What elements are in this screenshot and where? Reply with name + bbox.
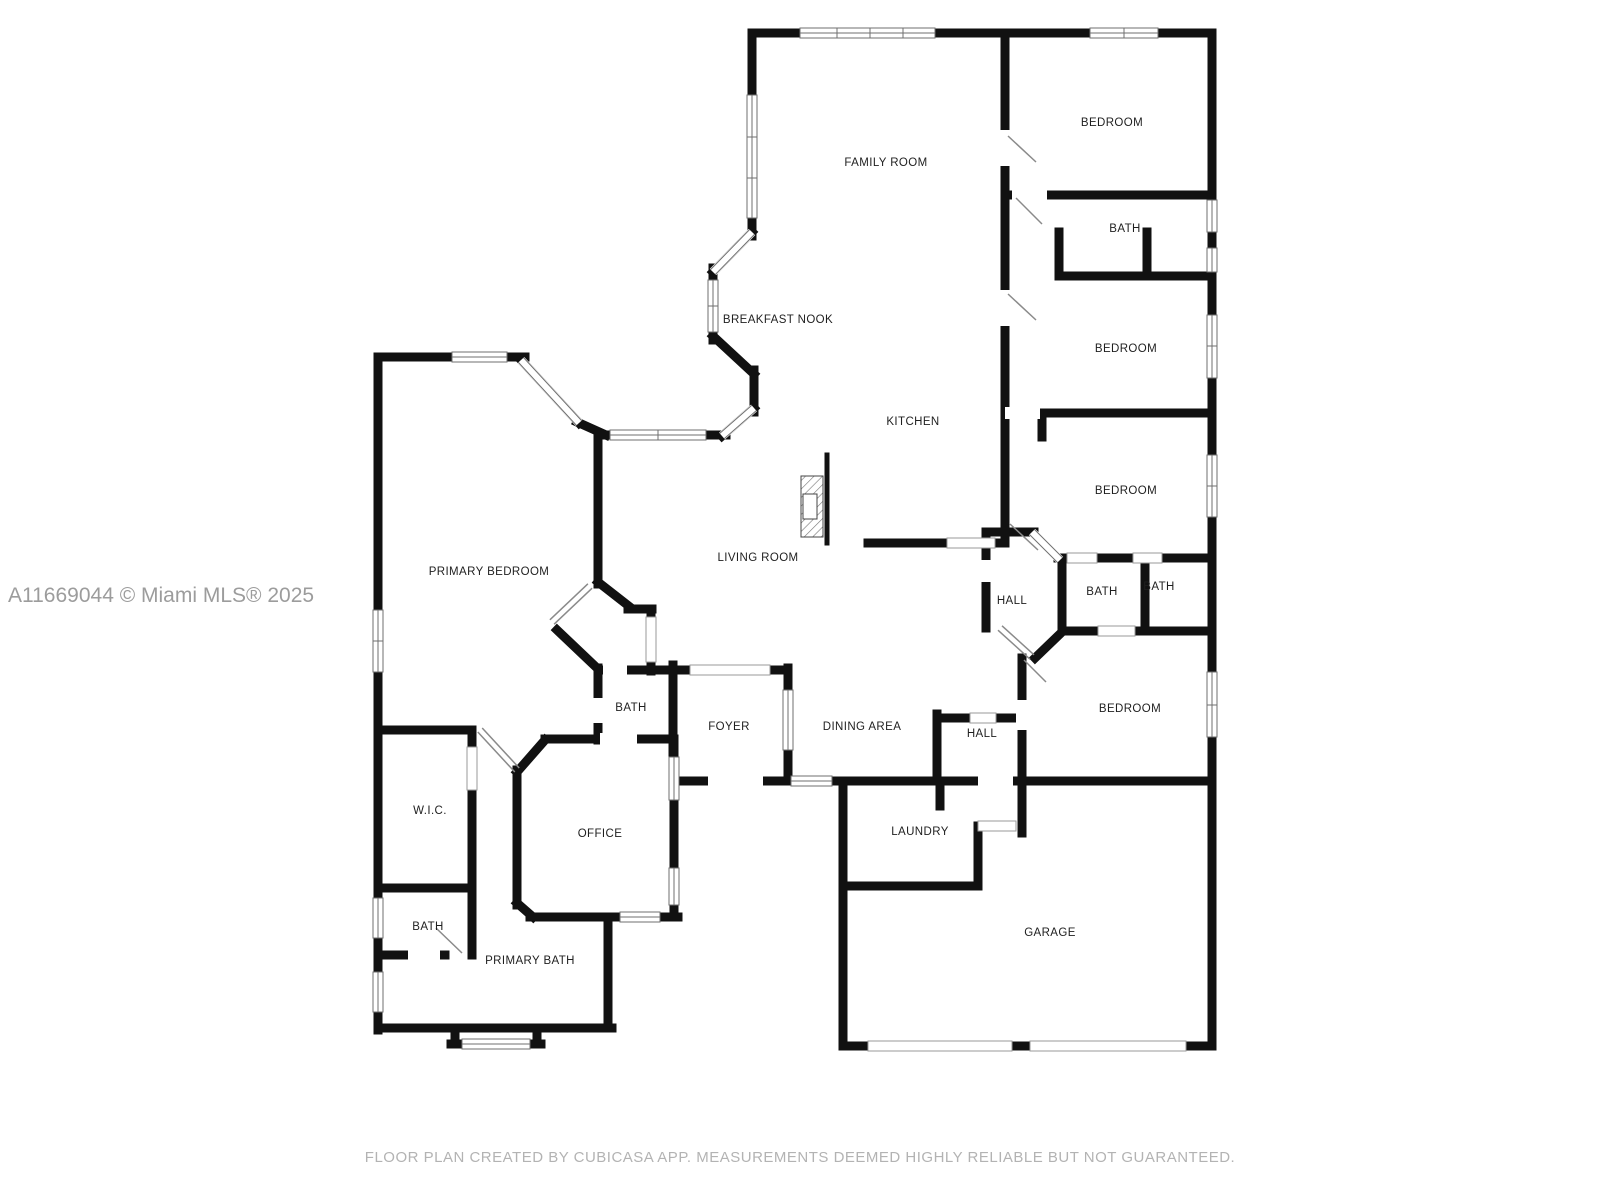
room-label-kitchen: KITCHEN [886, 416, 939, 428]
floor-plan-page: FAMILY ROOM BEDROOM BATH BEDROOM BREAKFA… [0, 0, 1600, 1200]
garage-door-left [868, 1041, 1012, 1051]
room-label-bath-1: BATH [1109, 223, 1140, 235]
openings-layer [467, 538, 1186, 1051]
room-label-bath-5: BATH [412, 921, 443, 933]
room-label-bath-3: BATH [1143, 581, 1174, 593]
room-label-hall-2: HALL [967, 728, 998, 740]
room-label-bedroom-1: BEDROOM [1081, 117, 1143, 129]
room-label-office: OFFICE [578, 828, 623, 840]
walls-layer [378, 33, 1212, 1046]
room-label-breakfast-nook: BREAKFAST NOOK [723, 314, 833, 326]
room-label-living-room: LIVING ROOM [717, 552, 798, 564]
windows-layer [373, 28, 1217, 1049]
room-label-hall-1: HALL [997, 595, 1028, 607]
room-label-garage: GARAGE [1024, 927, 1076, 939]
room-label-family-room: FAMILY ROOM [844, 157, 927, 169]
floor-plan-drawing: FAMILY ROOM BEDROOM BATH BEDROOM BREAKFA… [0, 0, 1600, 1200]
garage-door-right [1030, 1041, 1186, 1051]
room-label-dining-area: DINING AREA [823, 721, 902, 733]
room-label-laundry: LAUNDRY [891, 826, 949, 838]
room-label-foyer: FOYER [708, 721, 750, 733]
room-label-primary-bath: PRIMARY BATH [485, 955, 575, 967]
fireplace-icon [801, 455, 827, 543]
disclaimer-text: FLOOR PLAN CREATED BY CUBICASA APP. MEAS… [365, 1149, 1235, 1166]
room-label-wic: W.I.C. [413, 805, 447, 817]
room-label-bedroom-2: BEDROOM [1095, 343, 1157, 355]
mls-watermark-text: A11669044 © Miami MLS® 2025 [8, 584, 314, 607]
room-label-bedroom-4: BEDROOM [1099, 703, 1161, 715]
room-label-bath-4: BATH [615, 702, 646, 714]
room-label-bedroom-3: BEDROOM [1095, 485, 1157, 497]
room-label-bath-2: BATH [1086, 586, 1117, 598]
room-label-primary-bedroom: PRIMARY BEDROOM [429, 566, 550, 578]
